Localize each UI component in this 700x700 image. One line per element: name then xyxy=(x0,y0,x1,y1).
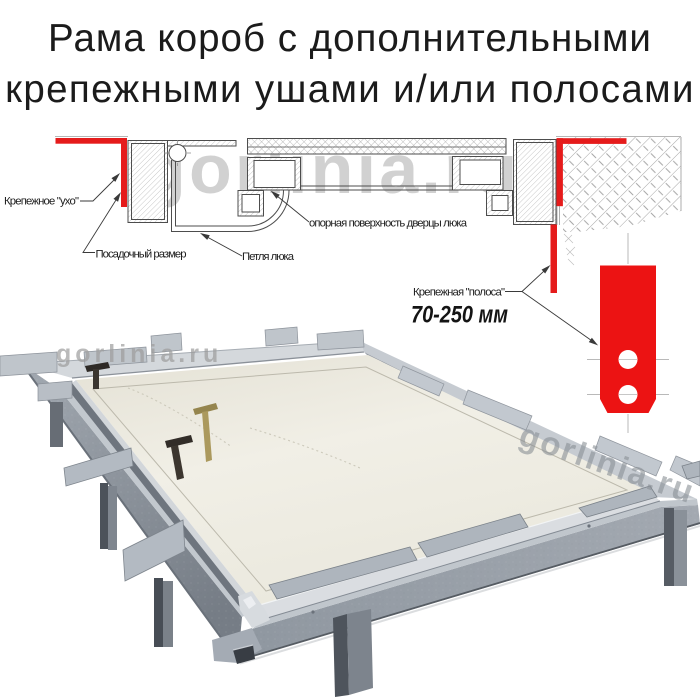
svg-text:70-250 мм: 70-250 мм xyxy=(411,302,508,329)
svg-text:Петля люка: Петля люка xyxy=(242,251,295,263)
svg-text:опорная поверхность дверцы люк: опорная поверхность дверцы люка xyxy=(309,218,468,230)
svg-text:Крепежная "полоса": Крепежная "полоса" xyxy=(413,287,505,299)
svg-text:gorlinia.ru: gorlinia.ru xyxy=(56,340,222,368)
svg-text:Посадочный размер: Посадочный размер xyxy=(96,249,187,261)
svg-text:Крепежное "ухо": Крепежное "ухо" xyxy=(4,196,79,208)
